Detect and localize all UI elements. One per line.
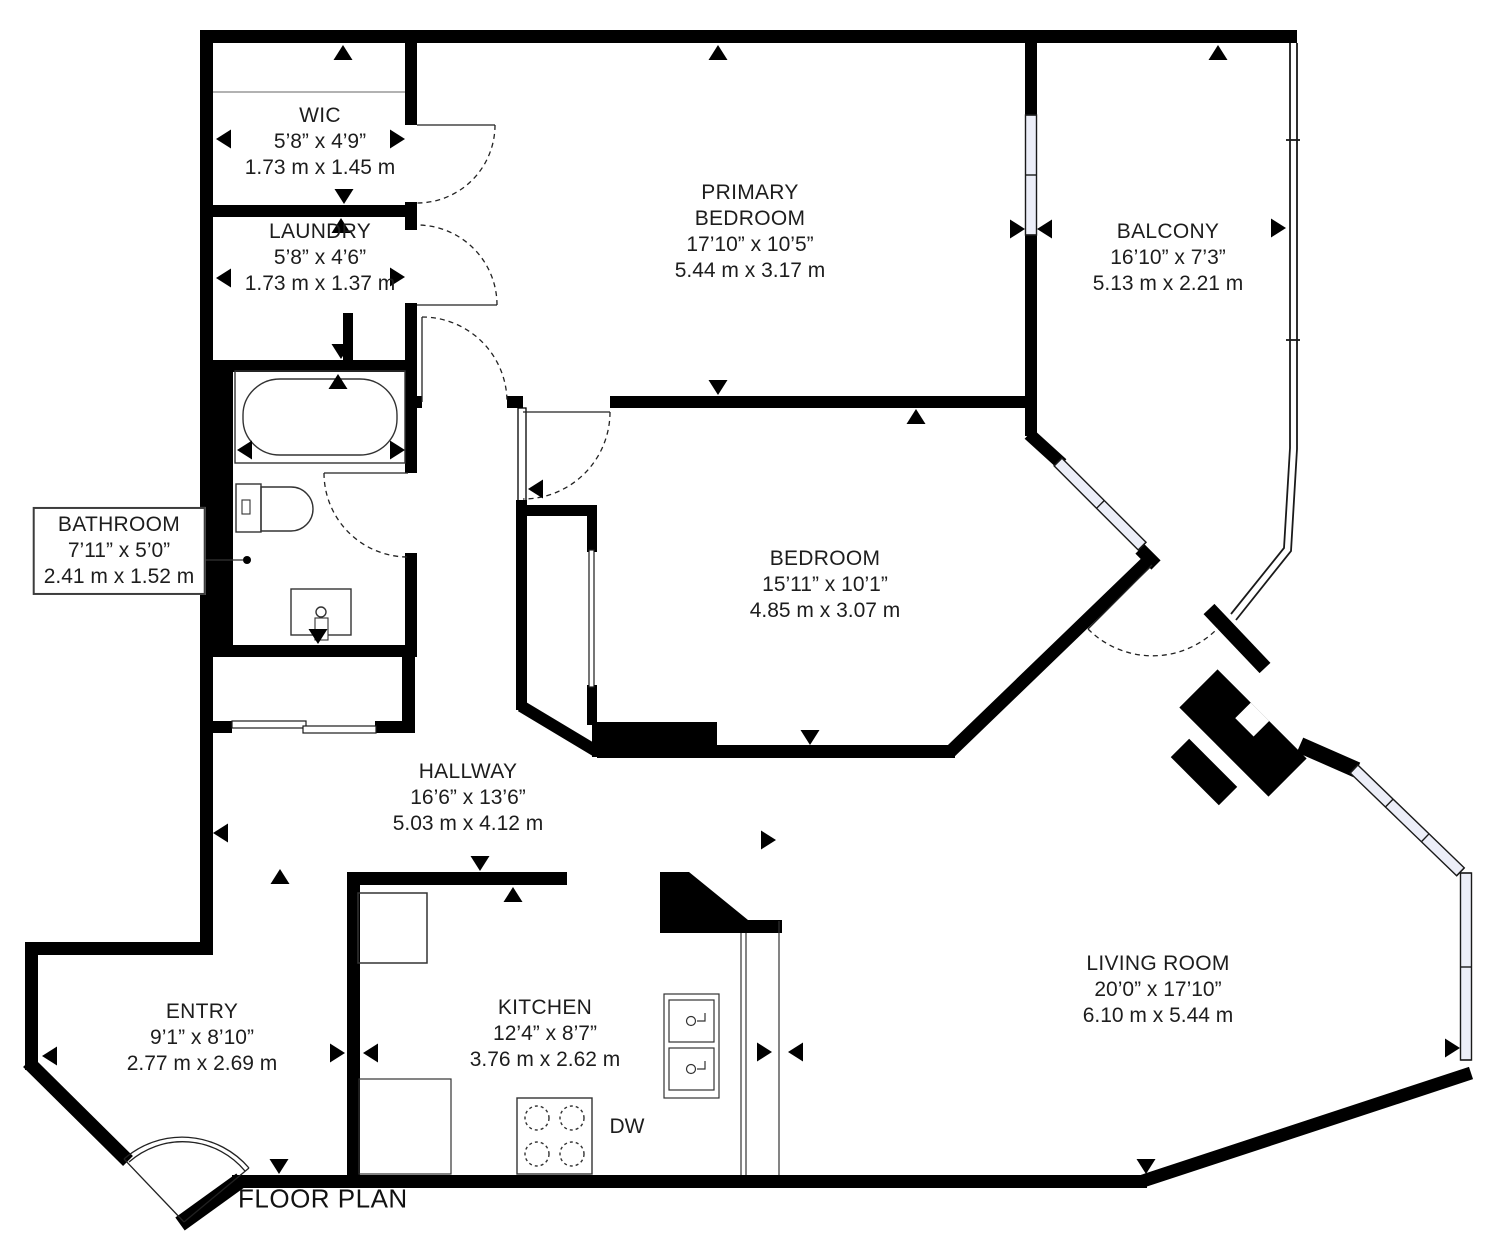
room-name: LIVING ROOM: [1083, 951, 1234, 977]
bathroom-door: [324, 473, 408, 557]
bathtub: [235, 371, 405, 463]
wall-top: [200, 30, 1297, 43]
room-dim-imperial: 16’6” x 13’6”: [393, 785, 544, 811]
room-label-bedroom: BEDROOM 15’11” x 10’1” 4.85 m x 3.07 m: [750, 546, 901, 624]
room-dim-metric: 3.76 m x 2.62 m: [470, 1047, 621, 1073]
window-living-east: [1461, 873, 1472, 1060]
wall-bedroom-west: [516, 500, 527, 710]
wic-door: [417, 125, 495, 203]
window-primary-balcony: [1026, 115, 1037, 235]
wall-bottom-right-diagonal: [1143, 1073, 1471, 1181]
room-dim-imperial: 5’8” x 4’6”: [245, 245, 396, 271]
room-dim-metric: 4.85 m x 3.07 m: [750, 598, 901, 624]
wall-wic-laundry-divider: [200, 205, 417, 217]
dishwasher-label: DW: [610, 1115, 645, 1139]
primary-bedroom-door: [422, 317, 507, 402]
room-label-kitchen: KITCHEN 12’4” x 8’7” 3.76 m x 2.62 m: [470, 995, 621, 1073]
room-name: HALLWAY: [393, 759, 544, 785]
window-balcony-diagonal: [1054, 458, 1146, 550]
room-dim-imperial: 20’0” x 17’10”: [1083, 977, 1234, 1003]
room-dim-metric: 5.03 m x 4.12 m: [393, 811, 544, 837]
room-label-laundry: LAUNDRY 5’8” x 4’6” 1.73 m x 1.37 m: [245, 219, 396, 297]
wall-balcony-west-a: [1025, 36, 1037, 115]
room-dim-imperial: 5’8” x 4’9”: [245, 129, 396, 155]
wall-bedroom-west-thin: [518, 408, 526, 505]
wall-kitchen-north: [347, 872, 567, 885]
room-dim-metric: 1.73 m x 1.45 m: [245, 155, 396, 181]
wall-bedroom-closet-top: [518, 505, 597, 516]
bathroom-leader-dot: [243, 556, 251, 564]
wall-hall-closet-stub-left: [206, 721, 232, 733]
room-dim-imperial: 7’11” x 5’0”: [44, 538, 195, 564]
wall-bedroom-closet-stub-a: [587, 516, 597, 552]
room-name: ENTRY: [127, 999, 278, 1025]
room-name: WIC: [245, 103, 396, 129]
wall-entry-north: [26, 942, 207, 955]
wall-balcony-west-b: [1025, 235, 1037, 436]
fireplace-window-stub: [1300, 745, 1357, 770]
closet-slider-right: [303, 726, 376, 733]
room-dim-imperial: 12’4” x 8’7”: [470, 1021, 621, 1047]
room-label-hallway: HALLWAY 16’6” x 13’6” 5.03 m x 4.12 m: [393, 759, 544, 837]
wall-balcony-corner-diag: [1029, 434, 1062, 464]
bedroom-wardrobe-block: [592, 722, 717, 757]
closet-slider-left: [232, 721, 306, 728]
room-dim-metric: 5.44 m x 3.17 m: [670, 258, 830, 284]
wall-bedroom-closet-stub-b: [587, 685, 597, 725]
wall-wic-east-a: [405, 30, 417, 125]
room-name: KITCHEN: [470, 995, 621, 1021]
floor-plan: WIC 5’8” x 4’9” 1.73 m x 1.45 m LAUNDRY …: [0, 0, 1500, 1257]
wall-suite-c: [610, 396, 1037, 408]
room-label-balcony: BALCONY 16’10” x 7’3” 5.13 m x 2.21 m: [1093, 219, 1244, 297]
bedroom-closet-slider: [589, 550, 594, 687]
wall-bath-west-chase: [200, 360, 233, 651]
room-name: BATHROOM: [44, 512, 195, 538]
balcony-railing: [1231, 43, 1300, 620]
window-living-diagonal: [1350, 765, 1464, 876]
room-label-bathroom: BATHROOM 7’11” x 5’0” 2.41 m x 1.52 m: [33, 507, 206, 595]
wall-entry-diagonal: [28, 1062, 128, 1161]
wall-bath-east-a: [405, 372, 417, 473]
wall-hall-closet-stub-right: [375, 721, 415, 733]
fireplace: [1171, 669, 1357, 805]
room-label-living-room: LIVING ROOM 20’0” x 17’10” 6.10 m x 5.44…: [1083, 951, 1234, 1029]
room-dim-metric: 2.41 m x 1.52 m: [44, 564, 195, 590]
room-dim-imperial: 15’11” x 10’1”: [750, 572, 901, 598]
wall-hall-closet-east: [402, 645, 415, 733]
laundry-door: [417, 225, 497, 305]
room-dim-metric: 6.10 m x 5.44 m: [1083, 1003, 1234, 1029]
room-dim-imperial: 9’1” x 8’10”: [127, 1025, 278, 1051]
room-dim-metric: 2.77 m x 2.69 m: [127, 1051, 278, 1077]
entry-closet: [358, 893, 427, 963]
wall-bath-east-b: [405, 553, 417, 651]
wall-suite-b: [507, 396, 523, 408]
room-dim-imperial: 16’10” x 7’3”: [1093, 245, 1244, 271]
room-name: LAUNDRY: [245, 219, 396, 245]
wall-entry-west: [25, 942, 38, 1070]
room-label-wic: WIC 5’8” x 4’9” 1.73 m x 1.45 m: [245, 103, 396, 181]
room-dim-metric: 5.13 m x 2.21 m: [1093, 271, 1244, 297]
kitchen-peninsula-counter: [660, 872, 782, 933]
room-label-primary-bedroom: PRIMARY BEDROOM 17’10” x 10’5” 5.44 m x …: [670, 180, 830, 284]
room-label-entry: ENTRY 9’1” x 8’10” 2.77 m x 2.69 m: [127, 999, 278, 1077]
room-dim-imperial: 17’10” x 10’5”: [670, 232, 830, 258]
wall-bath-south: [200, 645, 417, 657]
plan-title: FLOOR PLAN: [238, 1184, 408, 1215]
toilet: [236, 484, 313, 532]
kitchen-sink: [664, 994, 719, 1098]
room-name: PRIMARY BEDROOM: [670, 180, 830, 232]
balcony-door: [1088, 565, 1218, 656]
stove: [517, 1098, 592, 1174]
wall-bedroom-closet-diag: [521, 706, 596, 751]
wall-laundry-stub: [343, 313, 353, 368]
wall-bedroom-diagonal: [950, 560, 1149, 752]
room-dim-metric: 1.73 m x 1.37 m: [245, 271, 396, 297]
room-name: BEDROOM: [750, 546, 901, 572]
room-name: BALCONY: [1093, 219, 1244, 245]
wall-suite-a: [405, 396, 422, 408]
